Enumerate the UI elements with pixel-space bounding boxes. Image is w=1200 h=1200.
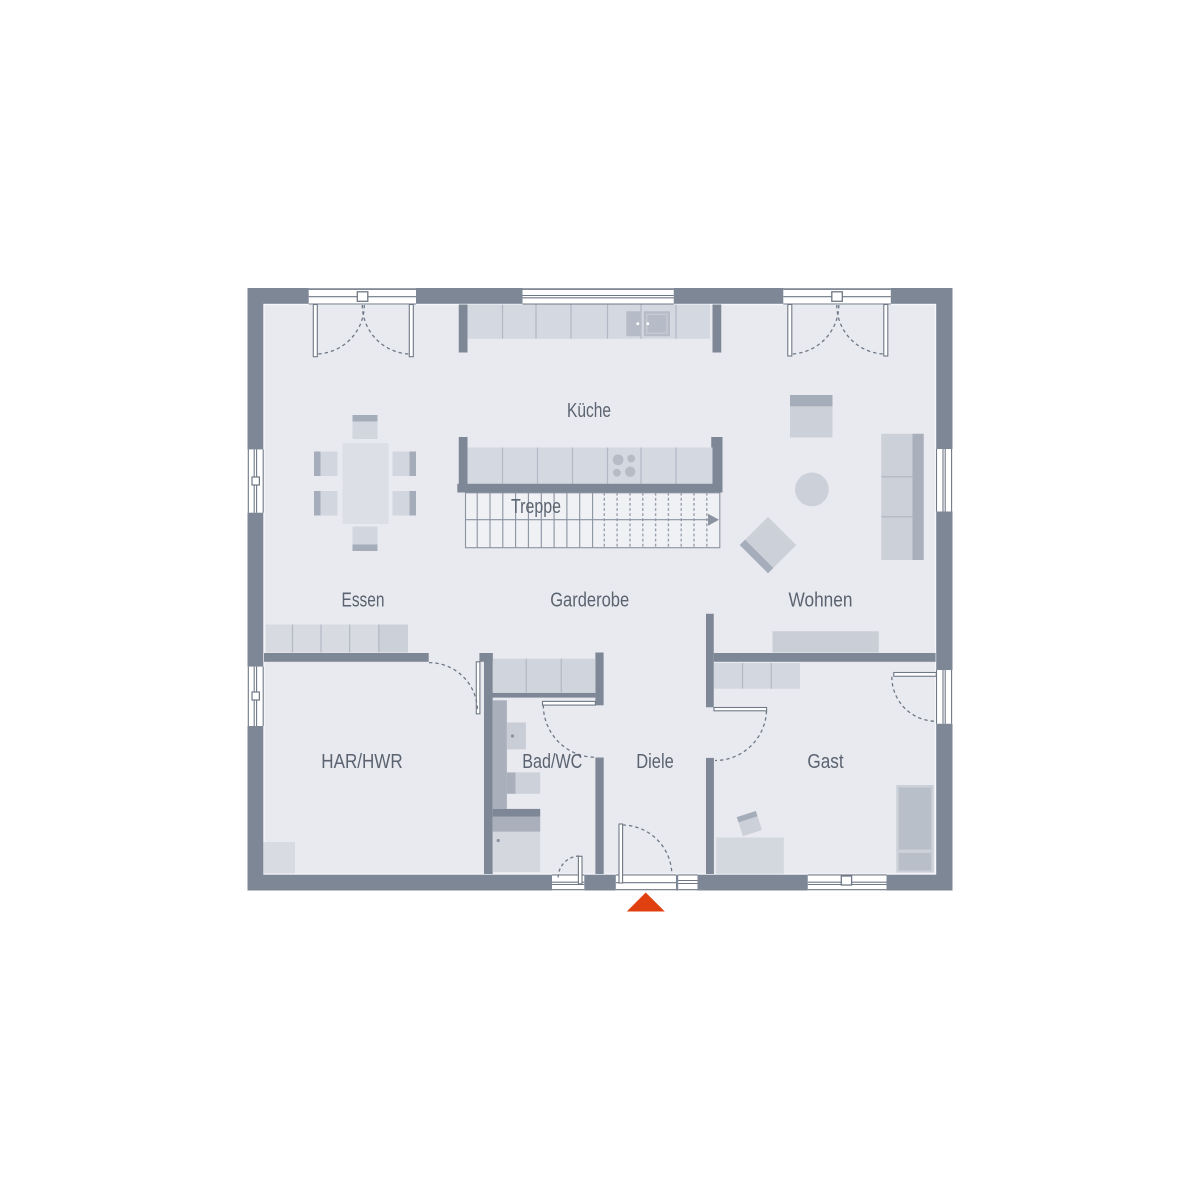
svg-text:Wohnen: Wohnen (789, 590, 853, 612)
svg-text:Küche: Küche (567, 400, 611, 422)
svg-text:Gast: Gast (807, 751, 844, 773)
svg-text:Diele: Diele (636, 751, 674, 773)
svg-text:Treppe: Treppe (511, 496, 561, 518)
svg-text:Essen: Essen (342, 590, 385, 612)
svg-text:Garderobe: Garderobe (550, 590, 629, 612)
svg-text:HAR/HWR: HAR/HWR (321, 751, 402, 773)
svg-text:Bad/WC: Bad/WC (522, 751, 582, 773)
